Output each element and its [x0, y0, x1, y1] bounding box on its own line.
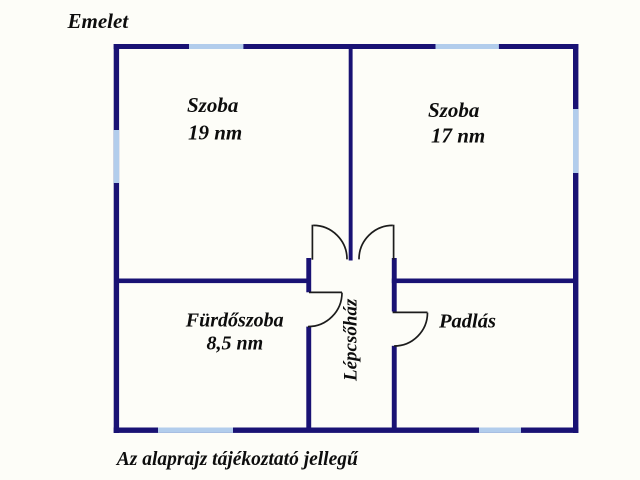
svg-text:19 nm: 19 nm	[188, 121, 242, 145]
svg-text:8,5 nm: 8,5 nm	[207, 333, 264, 355]
svg-text:Az alaprajz tájékoztató jelleg: Az alaprajz tájékoztató jellegű	[115, 449, 359, 470]
svg-text:Szoba: Szoba	[428, 98, 479, 122]
svg-text:17 nm: 17 nm	[431, 123, 485, 147]
svg-text:Fürdőszoba: Fürdőszoba	[185, 310, 284, 332]
svg-text:Emelet: Emelet	[67, 9, 130, 33]
svg-text:Szoba: Szoba	[187, 93, 238, 117]
svg-text:Lépcsőház: Lépcsőház	[341, 298, 362, 382]
svg-text:Padlás: Padlás	[438, 311, 496, 333]
